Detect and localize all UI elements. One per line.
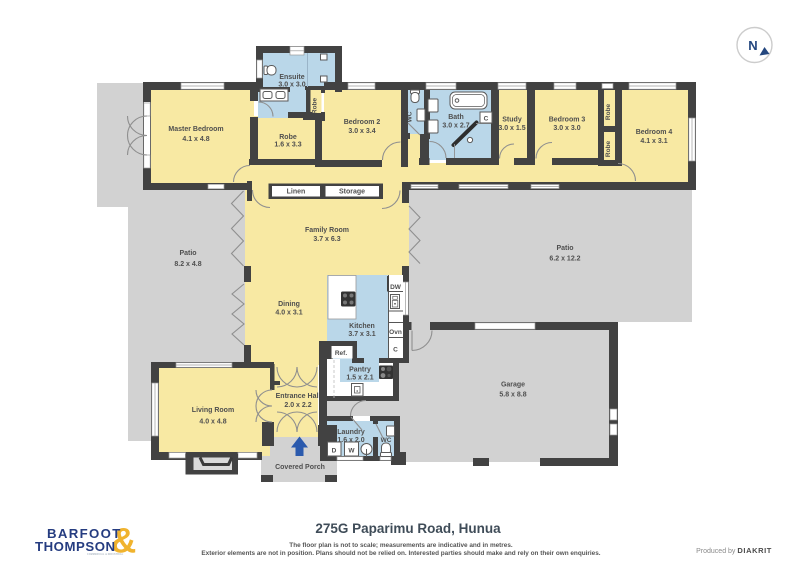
svg-text:3.0 x 1.5: 3.0 x 1.5 [498, 125, 525, 132]
svg-text:Dining: Dining [278, 301, 300, 308]
svg-text:3.0 x 3.4: 3.0 x 3.4 [348, 128, 375, 135]
svg-text:Linen: Linen [287, 189, 306, 196]
svg-text:Bedroom 4: Bedroom 4 [636, 129, 673, 136]
svg-text:Ovn: Ovn [389, 329, 402, 336]
svg-text:DW: DW [390, 284, 402, 291]
svg-text:C: C [484, 116, 489, 123]
svg-text:COMMERCIAL & INDUSTRIAL: COMMERCIAL & INDUSTRIAL [87, 553, 124, 556]
svg-text:Study: Study [502, 117, 522, 124]
svg-text:4.1 x 3.1: 4.1 x 3.1 [640, 138, 667, 145]
svg-text:Covered Porch: Covered Porch [275, 464, 325, 471]
svg-text:N: N [748, 38, 757, 53]
svg-text:Robe: Robe [605, 140, 612, 157]
svg-text:The floor plan is not to scale: The floor plan is not to scale; measurem… [289, 542, 513, 549]
svg-text:Exterior elements are not in p: Exterior elements are not in position. P… [201, 550, 600, 557]
svg-text:3.0 x 2.7: 3.0 x 2.7 [442, 123, 469, 130]
svg-text:4.0 x 4.8: 4.0 x 4.8 [199, 419, 226, 426]
svg-text:5.8 x 8.8: 5.8 x 8.8 [499, 392, 526, 399]
svg-text:Pantry: Pantry [349, 367, 371, 374]
svg-text:Patio: Patio [556, 245, 573, 252]
svg-text:Kitchen: Kitchen [349, 323, 375, 330]
svg-text:Laundry: Laundry [337, 429, 365, 436]
svg-text:Bedroom 3: Bedroom 3 [549, 117, 586, 124]
svg-text:Storage: Storage [339, 189, 365, 196]
svg-text:275G Paparimu Road, Hunua: 275G Paparimu Road, Hunua [315, 521, 501, 536]
svg-text:8.2 x 4.8: 8.2 x 4.8 [174, 261, 201, 268]
svg-text:Robe: Robe [279, 134, 297, 141]
svg-text:Patio: Patio [179, 250, 196, 257]
svg-text:Ref.: Ref. [335, 350, 347, 357]
svg-text:Master Bedroom: Master Bedroom [168, 126, 223, 133]
svg-text:Family Room: Family Room [305, 227, 349, 234]
svg-text:3.7 x 3.1: 3.7 x 3.1 [348, 331, 375, 338]
svg-text:THOMPSON: THOMPSON [35, 539, 116, 554]
svg-text:1.6 x 3.3: 1.6 x 3.3 [274, 142, 301, 149]
svg-text:Living Room: Living Room [192, 407, 234, 414]
svg-text:3.7 x 6.3: 3.7 x 6.3 [313, 236, 340, 243]
svg-text:Entrance Hall: Entrance Hall [276, 393, 321, 400]
svg-text:4.0 x 3.1: 4.0 x 3.1 [275, 310, 302, 317]
svg-text:Garage: Garage [501, 382, 525, 389]
svg-text:Robe: Robe [312, 97, 319, 114]
svg-text:Bath: Bath [448, 114, 464, 121]
svg-text:C: C [393, 347, 398, 354]
svg-text:2.0 x 2.2: 2.0 x 2.2 [284, 402, 311, 409]
svg-text:6.2 x 12.2: 6.2 x 12.2 [549, 256, 580, 263]
svg-text:1.5 x 2.1: 1.5 x 2.1 [346, 375, 373, 382]
svg-text:Robe: Robe [605, 103, 612, 120]
svg-text:3.0 x 3.0: 3.0 x 3.0 [553, 125, 580, 132]
svg-text:W: W [348, 448, 355, 455]
svg-text:Produced by DIAKRIT: Produced by DIAKRIT [696, 546, 772, 555]
svg-text:4.1 x 4.8: 4.1 x 4.8 [182, 136, 209, 143]
svg-text:Bedroom 2: Bedroom 2 [344, 119, 381, 126]
svg-text:D: D [332, 448, 337, 455]
svg-text:Ensuite: Ensuite [279, 74, 304, 81]
